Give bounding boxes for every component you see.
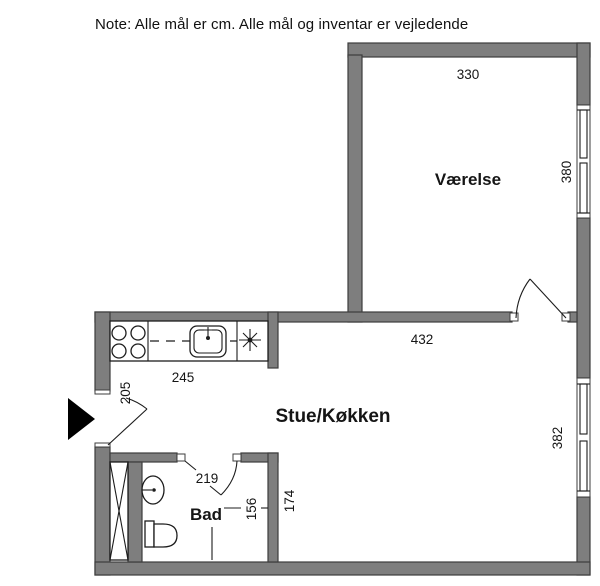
wall-left-lower	[95, 447, 110, 575]
dimension-stue-depth: 382	[550, 427, 565, 450]
door-vaerelse-swing	[516, 279, 566, 318]
entrance-arrow-icon	[68, 398, 95, 440]
dimension-vaerelse-depth: 380	[559, 161, 574, 184]
floor-plan-drawing: Værelse Stue/Køkken Bad 330 380 432 382 …	[0, 0, 600, 586]
window-vaerelse	[577, 105, 590, 218]
dimension-vaerelse-width: 330	[457, 67, 480, 82]
dimension-bad-inner: 156	[244, 498, 259, 521]
wall-bad-right	[268, 453, 278, 562]
wall-right-upper	[577, 43, 590, 105]
wall-bad-top-left	[110, 453, 177, 462]
floor-plan: Note: Alle mål er cm. Alle mål og invent…	[0, 0, 600, 586]
window-stue	[577, 378, 590, 497]
dimension-entrance-door: 205	[118, 382, 133, 405]
dimension-kitchen-counter: 245	[172, 370, 195, 385]
kitchen-sink-icon	[190, 326, 226, 357]
washbasin-icon	[142, 476, 164, 504]
dimension-bad-width: 219	[196, 471, 219, 486]
wall-vaerelse-left	[348, 55, 362, 322]
duct-shaft-icon	[110, 462, 128, 560]
wall-bad-left	[128, 462, 142, 562]
wall-left-upper	[95, 312, 110, 391]
room-label-bad: Bad	[190, 505, 222, 524]
dimension-bad-outer: 174	[282, 489, 297, 512]
wall-right-middle	[577, 218, 590, 378]
toilet-icon	[145, 521, 177, 547]
wall-kitchen-stub	[268, 312, 278, 368]
dimension-stue-width: 432	[411, 332, 434, 347]
room-label-vaerelse: Værelse	[435, 170, 501, 189]
wall-vaerelse-top	[348, 43, 590, 57]
wall-bottom	[95, 562, 590, 575]
room-label-stue-koekken: Stue/Køkken	[275, 406, 390, 427]
walls	[95, 43, 590, 575]
